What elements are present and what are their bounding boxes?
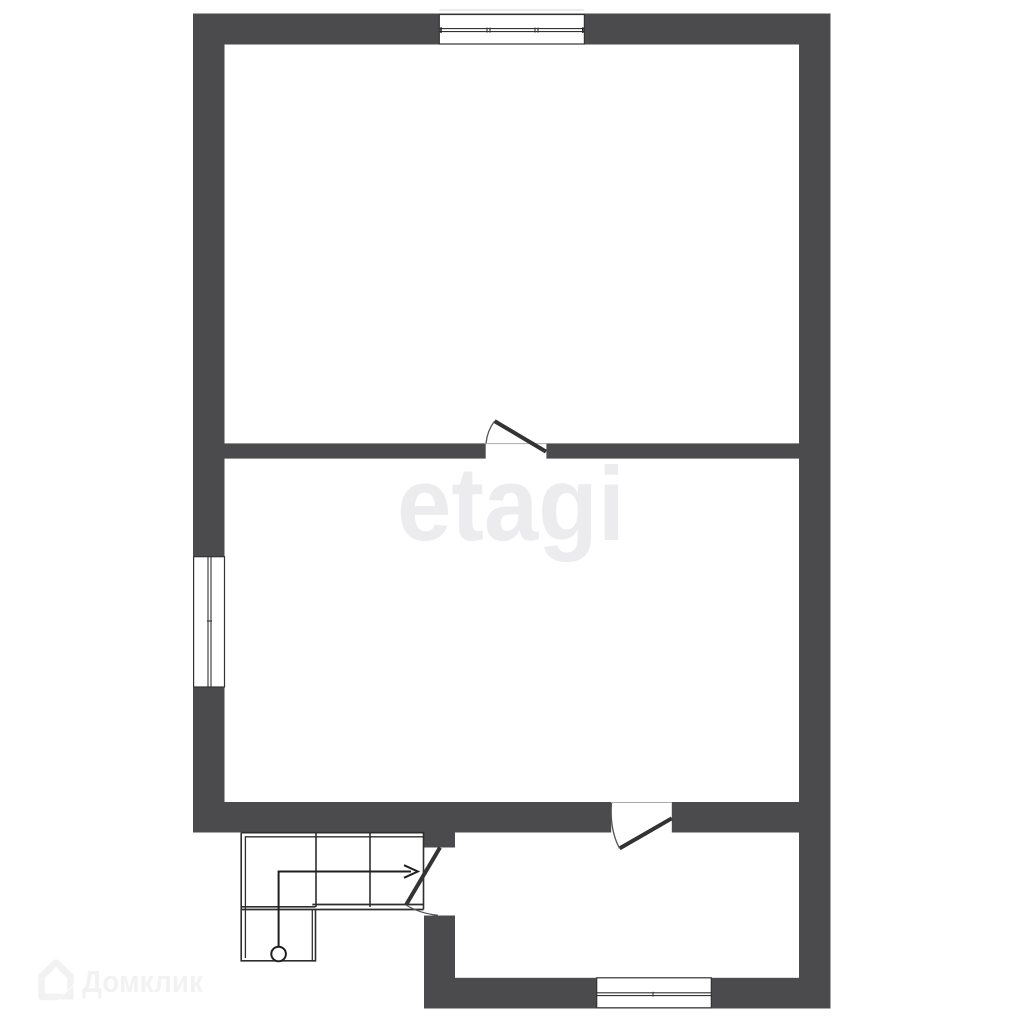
svg-text:Домклик: Домклик [82,964,203,999]
svg-text:etagi: etagi [397,446,625,563]
